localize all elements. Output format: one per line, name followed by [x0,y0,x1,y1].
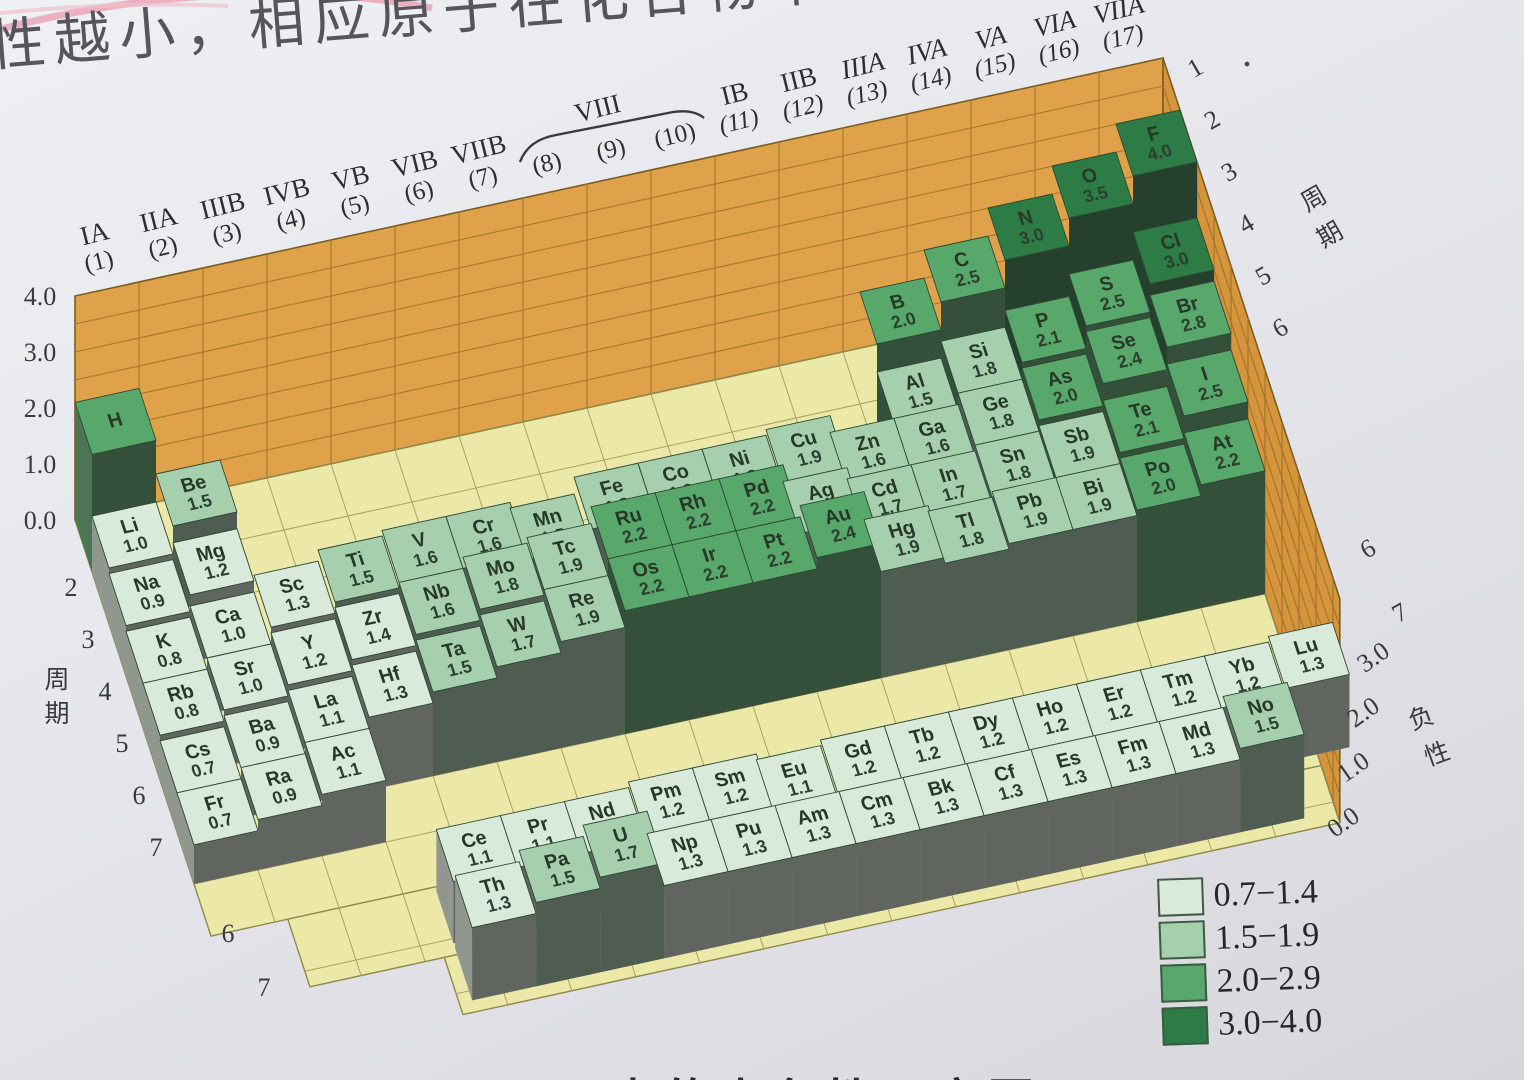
legend-range-label: 1.5−1.9 [1215,916,1320,958]
svg-text:3.0: 3.0 [24,338,57,367]
svg-text:7: 7 [150,833,163,862]
svg-text:IIIB: IIIB [197,185,248,225]
svg-text:7: 7 [258,973,271,1002]
svg-text:3: 3 [1216,156,1242,188]
svg-text:(5): (5) [338,189,373,222]
svg-text:4.0: 4.0 [24,282,57,311]
svg-text:(7): (7) [466,161,501,194]
book-page: HLi1.0Be1.5B2.0C2.5N3.0O3.5F4.0Na0.9Mg1.… [0,0,1524,1080]
svg-text:2: 2 [65,573,78,602]
legend-range-label: 2.0−2.9 [1216,959,1321,1001]
legend-range-label: 3.0−4.0 [1218,1002,1323,1044]
svg-text:6: 6 [222,919,235,948]
svg-text:0.0: 0.0 [24,506,57,535]
svg-text:IVB: IVB [260,171,312,211]
svg-text:期: 期 [1312,216,1348,254]
svg-text:6: 6 [133,781,146,810]
svg-text:6: 6 [1355,533,1381,565]
svg-text:2: 2 [1199,104,1225,136]
legend: 0.7−1.4 1.5−1.9 2.0−2.9 3.0−4.0 [1157,873,1323,1050]
svg-text:3.0: 3.0 [1351,636,1394,678]
bottom-caption-cropped: 元素的电负性示意图 [556,1062,1116,1080]
svg-text:5: 5 [116,729,129,758]
svg-text:(4): (4) [274,203,309,236]
legend-item: 1.5−1.9 [1159,916,1320,960]
svg-text:(3): (3) [210,217,245,250]
cube-Th: Th1.3 [455,862,536,1001]
svg-text:(9): (9) [594,133,629,166]
svg-text:(6): (6) [402,175,437,208]
svg-text:性: 性 [1420,736,1453,772]
legend-item: 2.0−2.9 [1160,959,1321,1003]
svg-text:4: 4 [1233,208,1259,240]
svg-text:周: 周 [1296,180,1332,218]
legend-item: 3.0−4.0 [1162,1002,1323,1046]
svg-text:3: 3 [82,625,95,654]
svg-text:7: 7 [1387,597,1413,629]
svg-text:1.0: 1.0 [24,450,57,479]
legend-swatch [1162,1006,1209,1046]
svg-text:(10): (10) [651,118,698,154]
svg-text:6: 6 [1267,312,1293,344]
legend-swatch [1157,877,1204,917]
legend-swatch [1160,963,1207,1003]
svg-text:(2): (2) [146,231,181,264]
svg-text:负: 负 [1404,700,1437,736]
svg-text:VIB: VIB [388,143,440,183]
svg-text:(8): (8) [530,147,565,180]
svg-text:1: 1 [1182,52,1208,84]
ink-speck [1245,62,1250,67]
legend-range-label: 0.7−1.4 [1213,873,1318,915]
svg-text:5: 5 [1250,260,1276,292]
legend-swatch [1159,920,1206,960]
svg-text:(1): (1) [82,245,117,278]
svg-text:IIA: IIA [137,200,181,238]
svg-text:(11): (11) [716,104,761,140]
svg-text:4: 4 [99,677,112,706]
cube-Fr: Fr0.7 [177,779,258,884]
svg-text:期: 期 [44,699,69,728]
legend-item: 0.7−1.4 [1157,873,1318,917]
svg-text:周: 周 [44,665,69,694]
svg-text:2.0: 2.0 [24,394,57,423]
